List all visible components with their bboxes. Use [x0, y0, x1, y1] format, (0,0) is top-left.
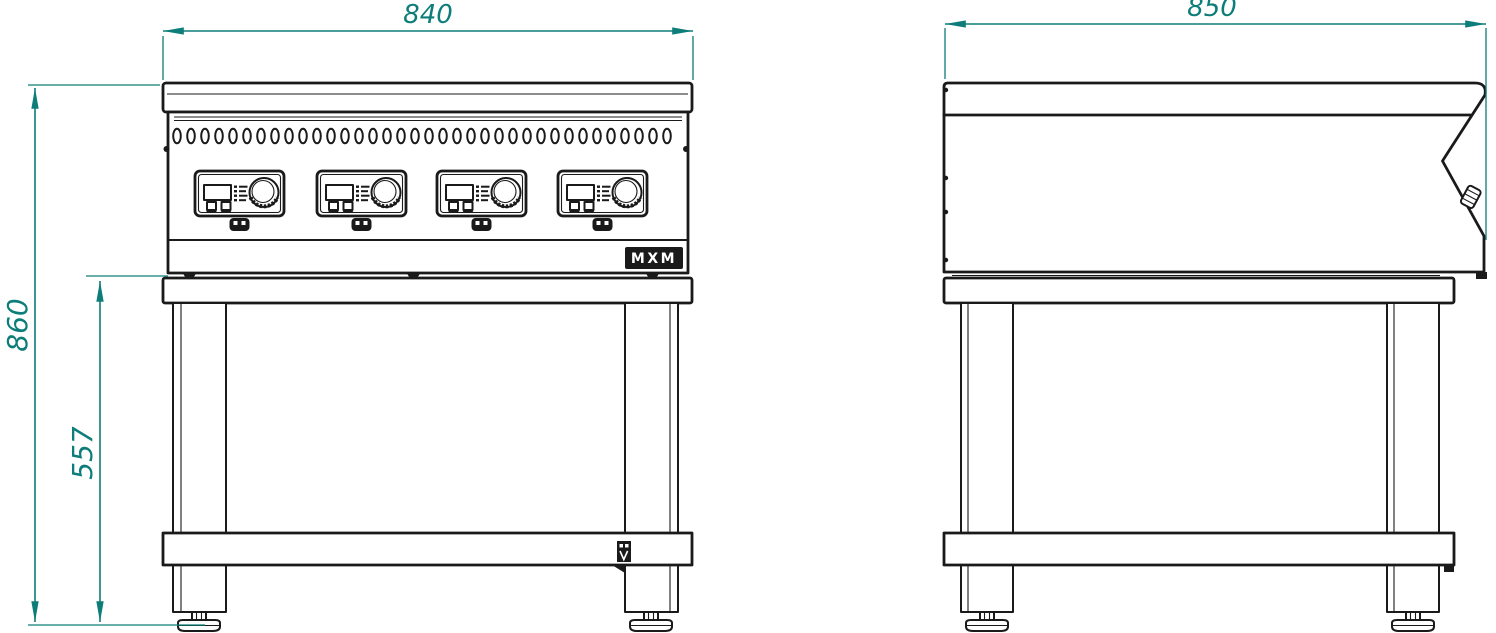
front-cross-brace [163, 533, 692, 565]
technical-drawing-page: MXM [0, 0, 1496, 633]
screw-icon [944, 88, 948, 92]
dimension-label-stand-height: 557 [66, 426, 99, 480]
dimension-label-side-depth: 850 [1187, 0, 1237, 23]
adjustable-foot [1392, 612, 1434, 631]
brand-logo-text: MXM [631, 251, 677, 267]
side-base-rail [944, 278, 1454, 303]
front-top-rim [163, 83, 692, 112]
body-corner-step [1476, 272, 1487, 279]
ground-terminal-icon [617, 541, 631, 562]
screw-icon [944, 258, 948, 262]
brand-logo: MXM [625, 247, 683, 269]
screw-left-icon [164, 146, 170, 152]
adjustable-foot [966, 612, 1008, 631]
brace-clip [1444, 565, 1454, 572]
adjustable-foot [630, 612, 672, 631]
screw-icon [944, 176, 948, 180]
side-cross-brace [944, 533, 1454, 565]
dim-stand-height: 557 [66, 276, 168, 622]
side-body-outline [944, 83, 1485, 272]
front-base-rail [163, 278, 692, 303]
front-view: MXM [163, 83, 692, 631]
technical-drawing-canvas: MXM [0, 0, 1496, 633]
dimension-label-front-width: 840 [403, 0, 453, 30]
dimension-label-overall-height: 860 [1, 298, 34, 351]
adjustable-foot [178, 612, 220, 631]
screw-icon [944, 210, 948, 214]
screw-right-icon [683, 146, 689, 152]
side-view [944, 83, 1487, 631]
dim-front-width: 840 [163, 0, 693, 80]
